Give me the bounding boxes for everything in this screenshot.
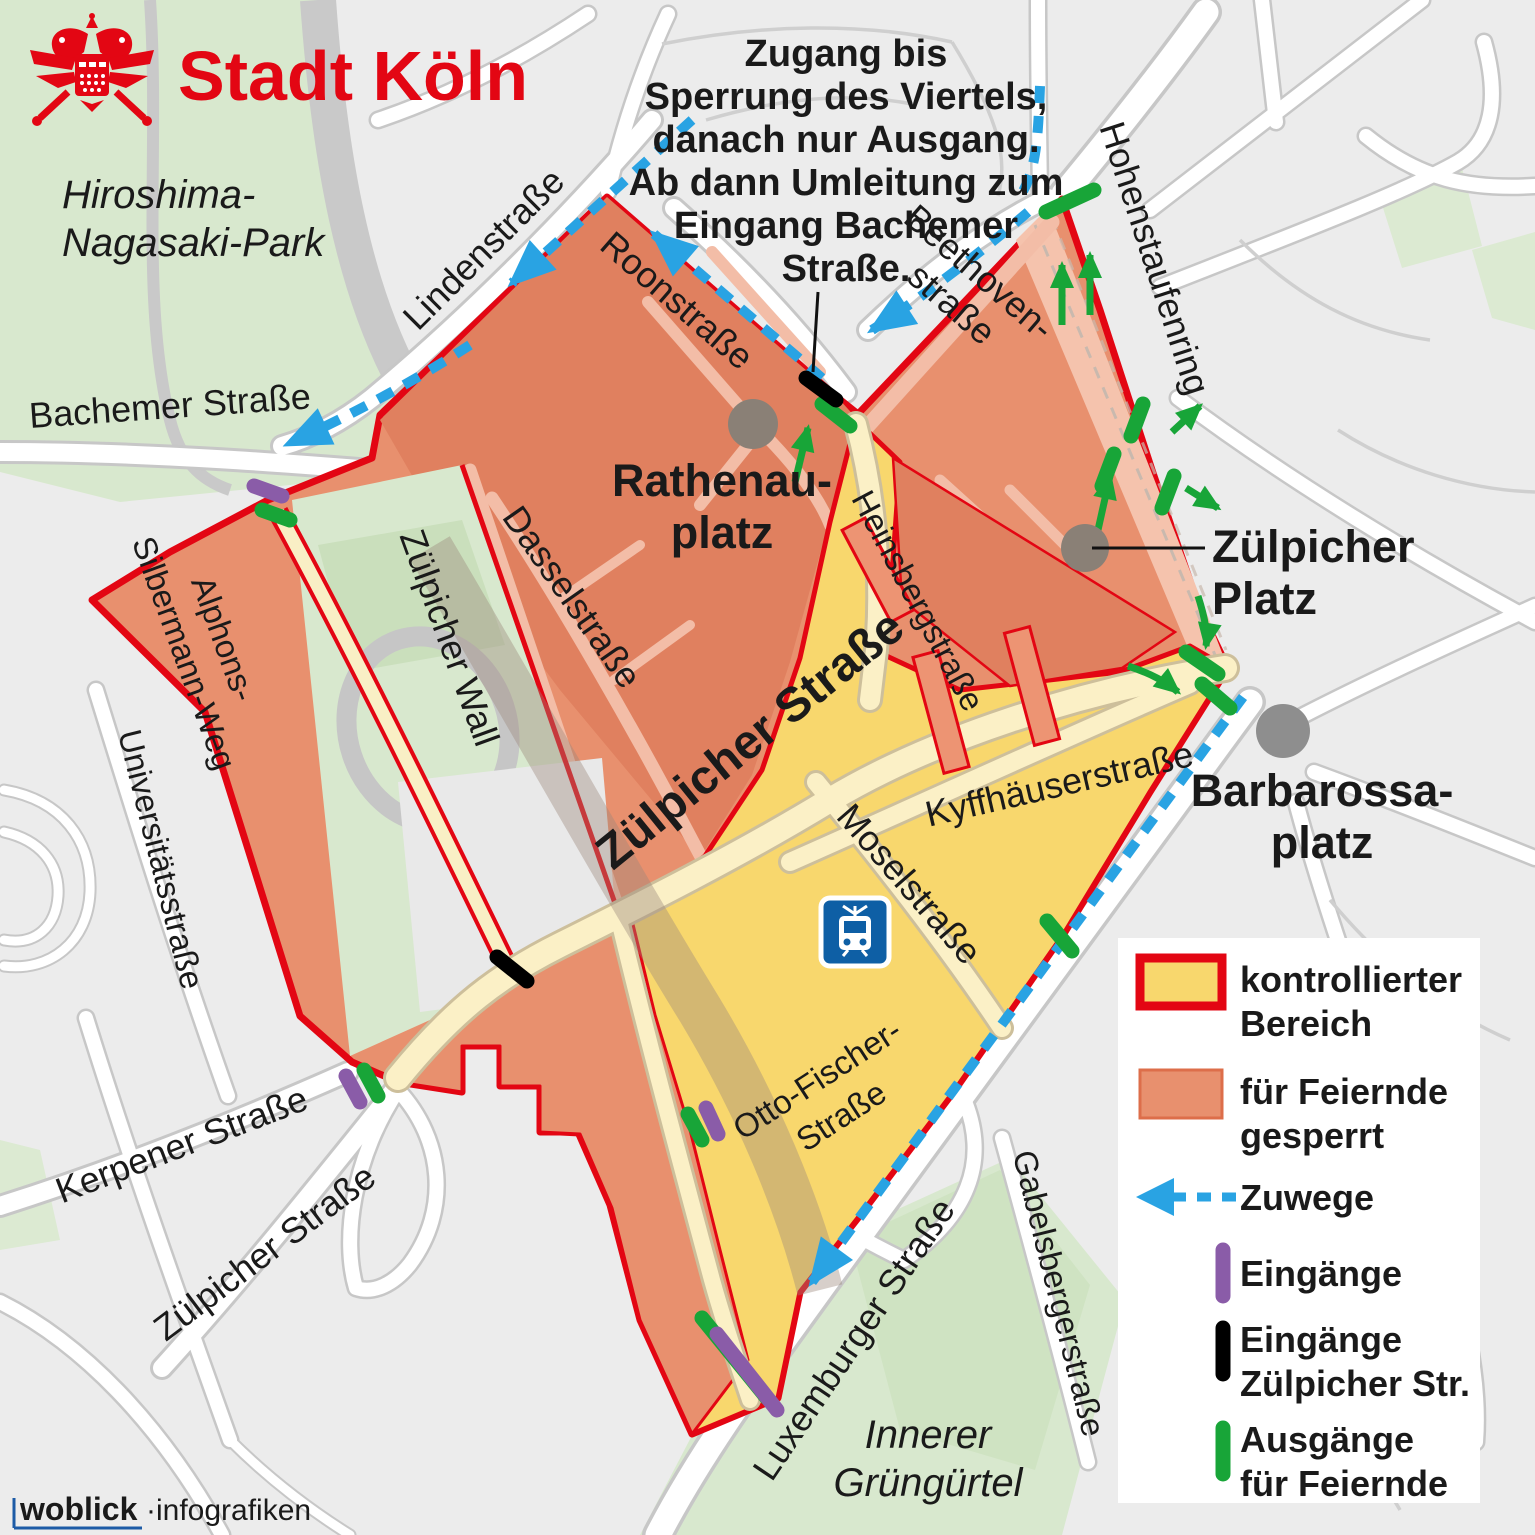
legend-label: für Feiernde bbox=[1240, 1071, 1448, 1112]
park-label: Innerer bbox=[865, 1413, 993, 1457]
annotation-line: Eingang Bachemer bbox=[674, 205, 1018, 247]
legend-label: Bereich bbox=[1240, 1003, 1372, 1044]
place-label: Platz bbox=[1212, 573, 1317, 624]
brand-wordmark: Stadt Köln bbox=[178, 37, 528, 115]
footer-brand: woblick bbox=[19, 1491, 138, 1527]
tram-stop-icon bbox=[821, 898, 889, 966]
infographic-map: Hiroshima- Nagasaki-Park Bachemer Straße… bbox=[0, 0, 1535, 1535]
rathenauplatz-dot bbox=[728, 399, 778, 449]
annotation-line: Ab dann Umleitung zum bbox=[629, 162, 1064, 204]
legend-label: Zülpicher Str. bbox=[1240, 1363, 1470, 1404]
map-canvas: Hiroshima- Nagasaki-Park Bachemer Straße… bbox=[0, 0, 1535, 1535]
footer-suffix: ·infografiken bbox=[146, 1494, 311, 1527]
annotation-line: Zugang bis bbox=[745, 33, 948, 75]
legend-label: für Feiernde bbox=[1240, 1463, 1448, 1504]
legend-label: Eingänge bbox=[1240, 1319, 1402, 1360]
park-label: Grüngürtel bbox=[834, 1461, 1024, 1505]
place-label: Zülpicher bbox=[1212, 521, 1415, 572]
legend-label: Zuwege bbox=[1240, 1177, 1374, 1218]
entrance-bar bbox=[254, 486, 282, 496]
legend-label: Eingänge bbox=[1240, 1253, 1402, 1294]
place-label: Rathenau- bbox=[612, 455, 832, 506]
place-label: platz bbox=[671, 507, 774, 558]
place-label: platz bbox=[1271, 817, 1374, 868]
footer-credit: woblick ·infografiken bbox=[14, 1491, 311, 1528]
barbarossaplatz-dot bbox=[1256, 704, 1310, 758]
annotation-line: Straße. bbox=[782, 248, 911, 290]
park-label: Hiroshima- bbox=[62, 173, 255, 217]
exit-bar bbox=[262, 510, 290, 520]
legend-label: kontrollierter bbox=[1240, 959, 1462, 1000]
legend-label: Ausgänge bbox=[1240, 1419, 1414, 1460]
annotation-line: danach nur Ausgang. bbox=[652, 119, 1039, 161]
annotation-line: Sperrung des Viertels, bbox=[645, 76, 1048, 118]
park-label: Nagasaki-Park bbox=[62, 221, 326, 265]
legend-controlled-swatch bbox=[1140, 958, 1222, 1006]
place-label: Barbarossa- bbox=[1191, 765, 1454, 816]
legend: kontrollierter Bereich für Feiernde gesp… bbox=[1118, 938, 1480, 1504]
legend-label: gesperrt bbox=[1240, 1115, 1384, 1156]
legend-blocked-swatch bbox=[1140, 1070, 1222, 1118]
